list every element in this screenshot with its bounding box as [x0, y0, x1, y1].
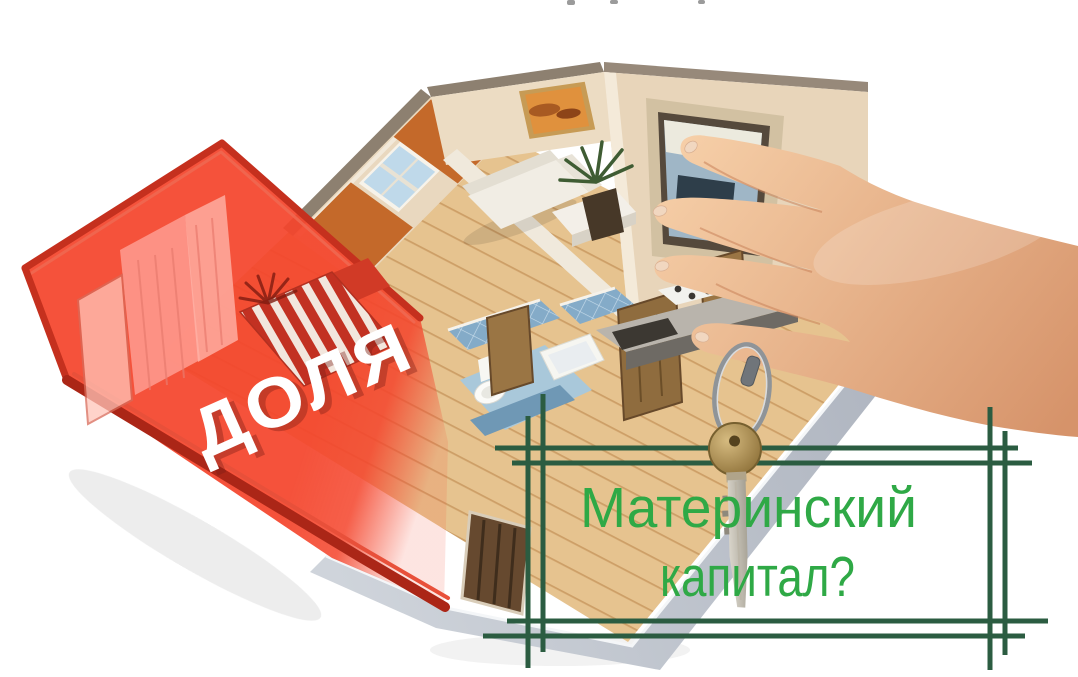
question-line1: Материнский	[580, 476, 917, 540]
illustration-canvas: ДОЛЯ ДОЛЯ	[0, 0, 1078, 677]
bedroom-door	[78, 275, 132, 424]
promo-image: ДОЛЯ ДОЛЯ	[0, 0, 1078, 677]
front-door	[462, 512, 530, 614]
question-line2: капитал?	[660, 545, 855, 609]
door	[487, 306, 533, 395]
